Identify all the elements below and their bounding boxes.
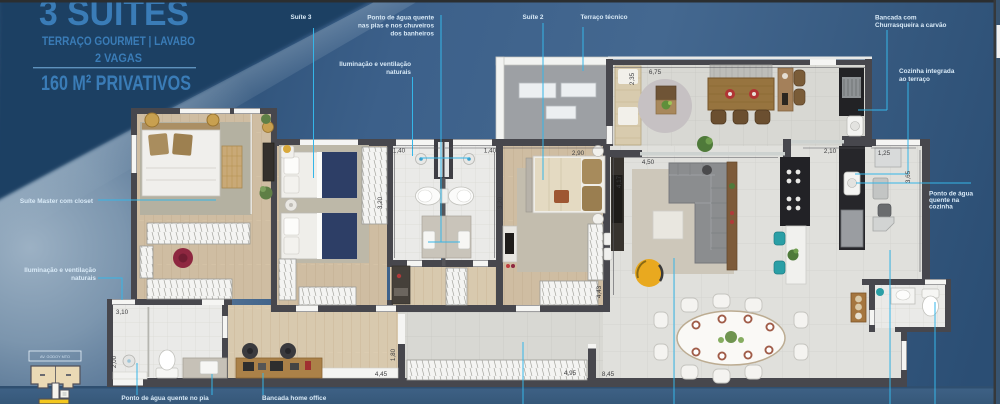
svg-text:AV. GODOY MTO: AV. GODOY MTO (40, 355, 70, 359)
svg-text:dos banheiros: dos banheiros (390, 31, 434, 38)
svg-text:nas pias e nos chuveiros: nas pias e nos chuveiros (358, 23, 434, 30)
svg-text:2,10: 2,10 (824, 148, 837, 155)
svg-text:2,35: 2,35 (629, 72, 636, 85)
svg-text:8,45: 8,45 (602, 371, 615, 378)
svg-text:2,90: 2,90 (572, 150, 585, 157)
svg-text:Iluminação e ventilação: Iluminação e ventilação (339, 61, 411, 68)
svg-text:1,80: 1,80 (390, 348, 397, 361)
svg-text:cozinha: cozinha (929, 204, 953, 211)
svg-text:1,25: 1,25 (878, 150, 891, 157)
svg-text:1,40: 1,40 (393, 148, 406, 155)
svg-text:naturais: naturais (386, 69, 411, 76)
svg-text:3 SUÍTES: 3 SUÍTES (39, 0, 189, 33)
svg-text:6,75: 6,75 (649, 69, 662, 76)
svg-text:3,20: 3,20 (497, 196, 504, 209)
svg-text:3,65: 3,65 (905, 170, 912, 183)
svg-text:2,00: 2,00 (111, 355, 118, 368)
svg-text:Suíte 2: Suíte 2 (523, 14, 544, 21)
svg-text:4,43: 4,43 (596, 285, 603, 298)
svg-text:Ponto de água quente: Ponto de água quente (367, 15, 434, 22)
svg-text:TERRAÇO GOURMET | LAVABO: TERRAÇO GOURMET | LAVABO (42, 34, 195, 48)
svg-text:Suíte Master com closet: Suíte Master com closet (20, 198, 94, 205)
svg-text:4,50: 4,50 (642, 159, 655, 166)
svg-text:Churrasqueira a carvão: Churrasqueira a carvão (875, 22, 946, 29)
svg-text:Cozinha integrada: Cozinha integrada (899, 68, 955, 75)
svg-text:4,95: 4,95 (564, 370, 577, 377)
svg-text:Bancada com: Bancada com (875, 15, 917, 22)
svg-text:160 M² PRIVATIVOS: 160 M² PRIVATIVOS (41, 71, 191, 95)
svg-text:ao terraço: ao terraço (899, 76, 930, 83)
svg-text:Terraço técnico: Terraço técnico (580, 14, 627, 21)
svg-text:2 VAGAS: 2 VAGAS (95, 51, 142, 65)
svg-text:3,20: 3,20 (377, 196, 384, 209)
svg-text:4,45: 4,45 (375, 371, 388, 378)
svg-text:Iluminação e ventilação: Iluminação e ventilação (24, 267, 96, 274)
svg-text:Bancada home office: Bancada home office (262, 395, 327, 402)
svg-text:naturais: naturais (71, 275, 96, 282)
svg-text:4,17: 4,17 (616, 175, 623, 188)
svg-text:Ponto de água quente no pia: Ponto de água quente no pia (121, 395, 209, 402)
svg-text:3,10: 3,10 (116, 309, 129, 316)
svg-text:1,40: 1,40 (484, 148, 497, 155)
svg-text:Suíte 3: Suíte 3 (291, 14, 312, 21)
